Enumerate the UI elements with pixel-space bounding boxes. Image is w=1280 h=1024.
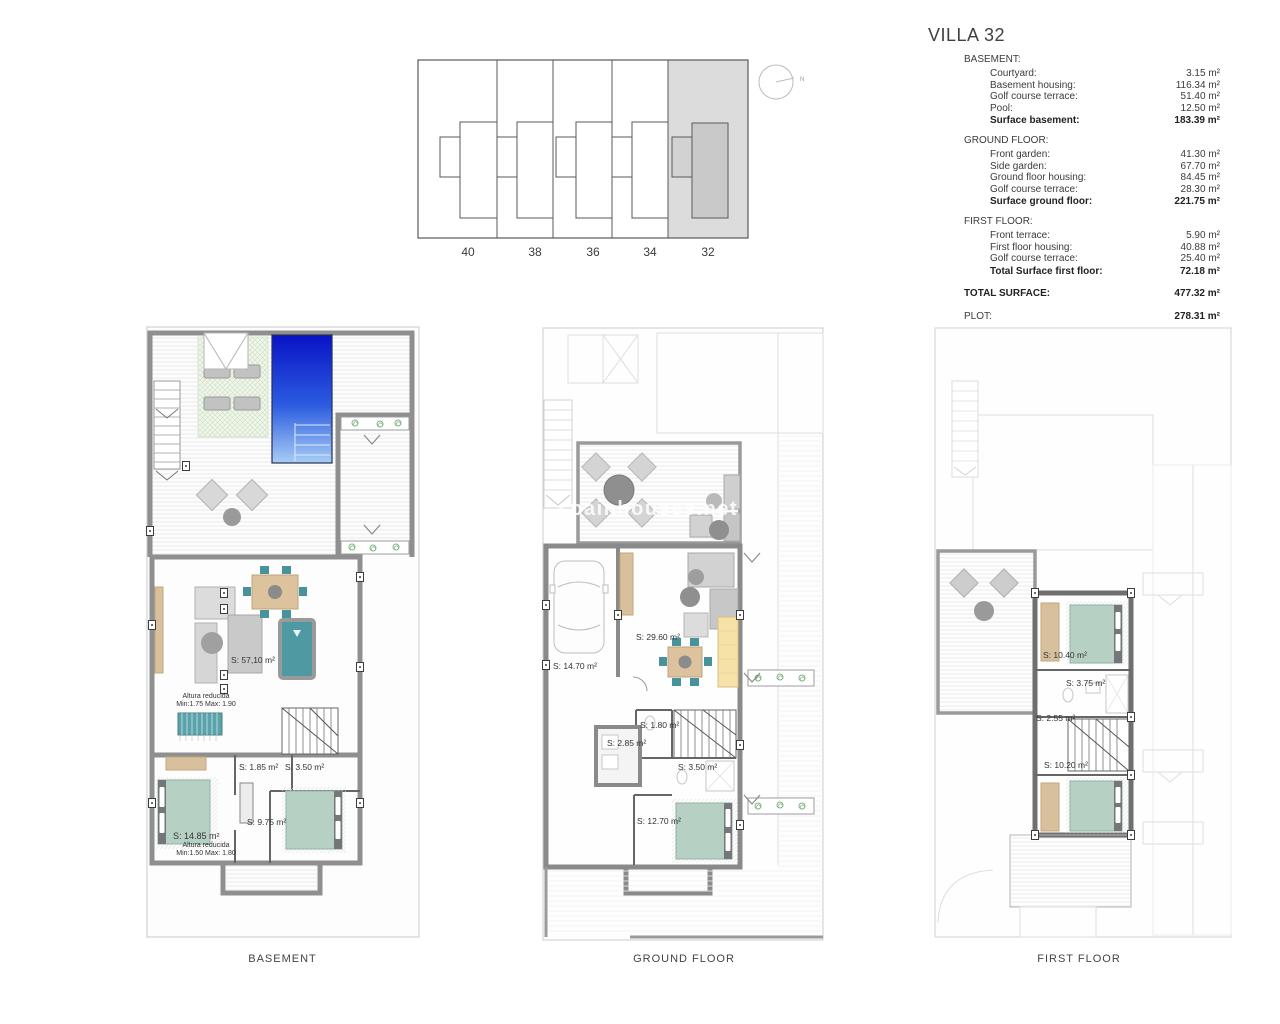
row-value: 72.18 m² [1180,267,1220,278]
room-label-bedroom1: S: 10.40 m² [1043,651,1087,660]
room-label-toilet: S: 1.85 m² [239,763,278,772]
summary-row: Front garden:41.30 m² [990,150,1220,161]
summary-total-ground: Surface ground floor:221.75 m² [990,197,1220,208]
stairs-icon [154,381,180,480]
room-label-living: S: 29.60 m² [636,633,680,642]
row-value: 278.31 m² [1174,312,1220,323]
ground-floor-plan: S: 14.70 m² S: 29.60 m² S: 1.80 m² S: 2.… [538,325,830,970]
summary-row: Pool:12.50 m² [990,104,1220,115]
room-label-bedroom: S: 14.85 m² [173,832,220,842]
summary-row: Side garden:67.70 m² [990,162,1220,173]
bed [1066,777,1128,833]
summary-row: Golf course terrace:25.40 m² [990,254,1220,265]
row-label: Front terrace: [990,231,1050,242]
plot-number-38: 38 [528,245,542,259]
rear-deck [546,870,823,932]
row-value: 40.88 m² [1181,243,1220,254]
row-label: Front garden: [990,150,1050,161]
row-value: 25.40 m² [1181,254,1220,265]
first-floor-drawing [918,325,1240,950]
site-plan: 40 38 36 34 32 N [415,55,835,270]
note-line: Altura reducida [164,842,248,850]
row-value: 477.32 m² [1174,289,1220,300]
bed [672,799,738,863]
room-label-bedroom: S: 12.70 m² [637,817,681,826]
room-label-hallway: S: 9.75 m² [247,818,286,827]
summary-row: Golf course terrace:28.30 m² [990,185,1220,196]
summary-row: First floor housing:40.88 m² [990,243,1220,254]
section-header-basement: BASEMENT: [964,55,1220,66]
car [550,561,608,653]
planter [341,541,409,554]
row-label: Pool: [990,104,1013,115]
basement-plan: S: 57,10 m² Altura reducida Min:1.75 Max… [140,325,425,970]
row-label: Side garden: [990,162,1047,173]
height-note: Altura reducida Min:1.75 Max: 1.90 [164,693,248,708]
row-value: 5.90 m² [1186,231,1220,242]
surface-summary: VILLA 32 BASEMENT: Courtyard:3.15 m² Bas… [928,30,1220,322]
row-value: 28.30 m² [1181,185,1220,196]
room-label-bathroom: S: 3.75 m² [1066,679,1105,688]
section-header-first: FIRST FLOOR: [964,217,1220,228]
summary-row: Golf course terrace:51.40 m² [990,92,1220,103]
bed [282,787,346,853]
page-title: VILLA 32 [928,30,1220,41]
planter [748,798,814,814]
section-header-ground: GROUND FLOOR: [964,136,1220,147]
row-value: 41.30 m² [1181,150,1220,161]
first-floor-plan: S: 10.40 m² S: 3.75 m² S: 2.55 m² S: 10.… [918,325,1240,970]
row-label: Surface ground floor: [990,197,1092,208]
row-label: Golf course terrace: [990,92,1078,103]
plot-number-36: 36 [586,245,600,259]
height-note: Altura reducida Min:1.50 Max: 1.80 [164,842,248,857]
golf-terrace [1010,835,1131,907]
wardrobe [166,757,206,770]
room-label-toilet: S: 1.80 m² [640,721,679,730]
room-label-bedroom2: S: 10.20 m² [1044,761,1088,770]
compass-label: N [800,77,804,83]
row-value: 84.45 m² [1181,173,1220,184]
stairs-icon [674,710,736,758]
summary-row: Ground floor housing:84.45 m² [990,173,1220,184]
stairs-icon [952,381,978,477]
room-label-living: S: 57,10 m² [231,656,275,665]
summary-row: Courtyard:3.15 m² [990,69,1220,80]
total-surface-row: TOTAL SURFACE:477.32 m² [964,289,1220,300]
row-value: 67.70 m² [1181,162,1220,173]
site-plan-drawing: 40 38 36 34 32 N [415,55,835,270]
room-label-garage: S: 14.70 m² [553,662,597,671]
row-label: PLOT: [964,312,992,323]
plot-number-40: 40 [461,245,475,259]
row-value: 221.75 m² [1174,197,1220,208]
summary-total-first: Total Surface first floor:72.18 m² [990,267,1220,278]
plan-title-ground: GROUND FLOOR [538,953,830,965]
pool-table [280,620,314,678]
note-line: Min:1.75 Max: 1.90 [164,701,248,709]
swimming-pool [272,335,332,463]
note-line: Min:1.50 Max: 1.80 [164,850,248,858]
room-label-storage: S: 2.85 m² [607,739,646,748]
stairs-icon [282,708,338,754]
note-line: Altura reducida [164,693,248,701]
storage-room [596,727,640,785]
ground-floor-drawing [538,325,830,950]
row-label: Total Surface first floor: [990,267,1103,278]
row-value: 116.34 m² [1176,81,1220,92]
planter [341,417,409,430]
row-value: 3.15 m² [1186,69,1220,80]
plan-title-basement: BASEMENT [140,953,425,965]
row-label: Surface basement: [990,116,1079,127]
compass-icon: N [759,65,804,99]
row-value: 183.39 m² [1174,116,1220,127]
plot-number-34: 34 [643,245,657,259]
row-value: 12.50 m² [1181,104,1220,115]
shelf [155,587,163,673]
plan-title-first: FIRST FLOOR [918,953,1240,965]
skylight [204,333,248,369]
row-value: 51.40 m² [1181,92,1220,103]
row-label: First floor housing: [990,243,1072,254]
kitchen-counter [718,617,738,687]
row-label: Ground floor housing: [990,173,1086,184]
summary-row: Basement housing:116.34 m² [990,81,1220,92]
room-label-bathroom: S: 3.50 m² [678,763,717,772]
hall-cabinet [620,553,633,615]
plan-sheet: 40 38 36 34 32 N VILLA 32 BASEMENT: Cour… [0,0,1280,1024]
plot-numbers: 40 38 36 34 32 [461,245,715,259]
plot-row: PLOT:278.31 m² [964,312,1220,323]
row-label: Basement housing: [990,81,1076,92]
patio-deck [226,866,317,890]
row-label: TOTAL SURFACE: [964,289,1050,300]
summary-total-basement: Surface basement:183.39 m² [990,116,1220,127]
wardrobe [1041,783,1059,831]
row-label: Courtyard: [990,69,1037,80]
terrace-deck [938,551,1035,713]
row-label: Golf course terrace: [990,185,1078,196]
summary-row: Front terrace:5.90 m² [990,231,1220,242]
room-label-bathroom: S: 3.50 m² [285,763,324,772]
row-label: Golf course terrace: [990,254,1078,265]
plot-number-32: 32 [701,245,715,259]
planter [748,670,814,686]
room-label-hallway: S: 2.55 m² [1036,714,1075,723]
stairs-icon [544,400,572,508]
